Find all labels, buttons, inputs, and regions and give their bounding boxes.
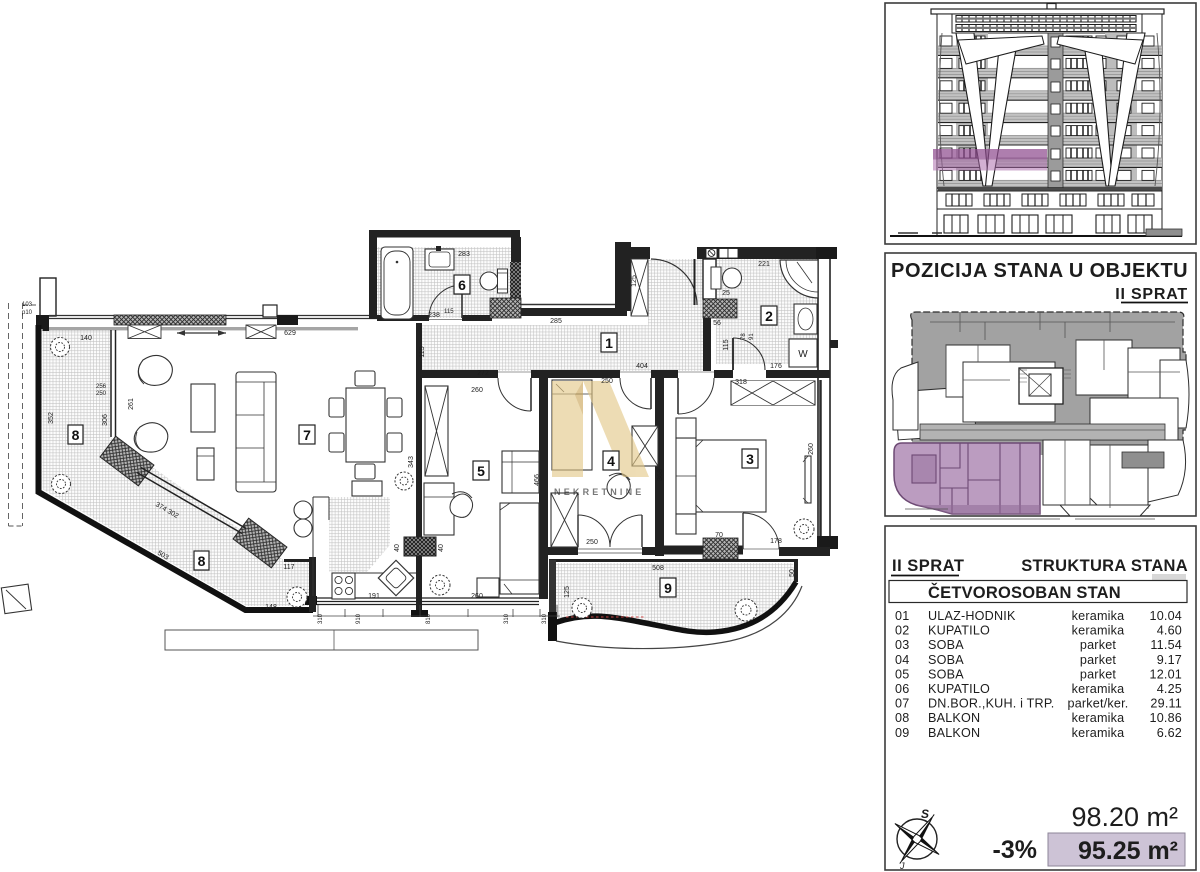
svg-text:II SPRAT: II SPRAT xyxy=(892,557,964,575)
svg-text:306: 306 xyxy=(102,414,109,426)
svg-text:07: 07 xyxy=(895,697,909,711)
svg-text:40: 40 xyxy=(394,544,401,552)
svg-text:70: 70 xyxy=(715,532,723,539)
svg-text:260: 260 xyxy=(808,443,815,455)
svg-text:keramika: keramika xyxy=(1072,711,1125,725)
svg-text:343: 343 xyxy=(408,456,415,468)
svg-text:91: 91 xyxy=(749,333,755,340)
svg-text:II SPRAT: II SPRAT xyxy=(1115,286,1188,303)
svg-text:352: 352 xyxy=(48,412,55,424)
svg-text:08: 08 xyxy=(895,711,909,725)
svg-text:05: 05 xyxy=(895,667,909,681)
svg-text:140: 140 xyxy=(80,335,92,342)
svg-text:SOBA: SOBA xyxy=(928,667,964,681)
svg-text:310: 310 xyxy=(504,613,510,624)
svg-text:115: 115 xyxy=(444,309,454,315)
svg-text:310: 310 xyxy=(542,613,548,624)
svg-text:98.20 m²: 98.20 m² xyxy=(1071,802,1178,832)
svg-text:06: 06 xyxy=(895,682,909,696)
svg-text:KUPATILO: KUPATILO xyxy=(928,682,990,696)
svg-text:260: 260 xyxy=(471,593,483,600)
svg-text:POZICIJA STANA: POZICIJA STANA xyxy=(891,260,1064,282)
svg-text:-3%: -3% xyxy=(993,836,1037,864)
svg-text:115: 115 xyxy=(419,346,426,357)
svg-text:DN.BOR.,KUH. i TRP.: DN.BOR.,KUH. i TRP. xyxy=(928,697,1055,711)
svg-text:p10: p10 xyxy=(22,310,33,316)
svg-text:250: 250 xyxy=(586,539,598,546)
svg-text:ČETVOROSOBAN STAN: ČETVOROSOBAN STAN xyxy=(928,583,1121,602)
svg-text:318: 318 xyxy=(735,379,747,386)
svg-text:250: 250 xyxy=(601,378,613,385)
svg-text:9.17: 9.17 xyxy=(1157,653,1182,667)
svg-text:6: 6 xyxy=(458,277,466,293)
svg-text:STRUKTURA STANA: STRUKTURA STANA xyxy=(1021,557,1188,575)
svg-text:BALKON: BALKON xyxy=(928,726,980,740)
svg-text:4.60: 4.60 xyxy=(1157,624,1182,638)
svg-text:7: 7 xyxy=(303,427,311,443)
svg-text:272: 272 xyxy=(477,370,489,377)
svg-text:5: 5 xyxy=(477,463,485,479)
svg-text:4: 4 xyxy=(607,453,615,469)
svg-text:BALKON: BALKON xyxy=(928,711,980,725)
svg-text:910: 910 xyxy=(356,613,362,624)
svg-text:NEKRETNINE: NEKRETNINE xyxy=(554,487,645,497)
svg-text:keramika: keramika xyxy=(1072,682,1125,696)
svg-text:238: 238 xyxy=(428,312,440,319)
svg-text:176: 176 xyxy=(770,363,782,370)
svg-text:260: 260 xyxy=(471,387,483,394)
svg-text:115: 115 xyxy=(723,339,730,350)
svg-text:103: 103 xyxy=(22,302,33,308)
svg-text:03: 03 xyxy=(895,638,909,652)
svg-text:117: 117 xyxy=(283,564,294,571)
svg-text:10.04: 10.04 xyxy=(1149,609,1182,623)
svg-text:368: 368 xyxy=(657,469,664,481)
svg-text:810: 810 xyxy=(426,613,432,624)
svg-text:KUPATILO: KUPATILO xyxy=(928,624,990,638)
svg-text:SOBA: SOBA xyxy=(928,638,964,652)
svg-text:9: 9 xyxy=(664,580,672,596)
svg-text:11.54: 11.54 xyxy=(1150,638,1182,652)
svg-text:01: 01 xyxy=(895,609,909,623)
svg-text:285: 285 xyxy=(550,318,562,325)
svg-text:50: 50 xyxy=(789,569,796,577)
svg-text:1: 1 xyxy=(605,335,613,351)
svg-text:ULAZ-HODNIK: ULAZ-HODNIK xyxy=(928,609,1016,623)
svg-text:S: S xyxy=(921,807,929,821)
svg-text:09: 09 xyxy=(895,726,909,740)
svg-text:2: 2 xyxy=(765,308,773,324)
svg-text:keramika: keramika xyxy=(1072,609,1125,623)
svg-text:250: 250 xyxy=(96,391,107,397)
svg-text:parket: parket xyxy=(1080,667,1117,681)
svg-text:404: 404 xyxy=(636,363,648,370)
svg-text:508: 508 xyxy=(652,565,664,572)
svg-text:40: 40 xyxy=(438,544,445,552)
svg-text:261: 261 xyxy=(128,398,135,410)
svg-text:10.86: 10.86 xyxy=(1149,711,1182,725)
svg-text:221: 221 xyxy=(758,261,770,268)
svg-text:78: 78 xyxy=(741,333,747,340)
svg-text:02: 02 xyxy=(895,624,909,638)
svg-text:256: 256 xyxy=(96,384,107,390)
svg-text:keramika: keramika xyxy=(1072,624,1125,638)
svg-text:629: 629 xyxy=(284,330,296,337)
svg-text:310: 310 xyxy=(318,613,324,624)
svg-text:191: 191 xyxy=(368,593,380,600)
svg-text:4.25: 4.25 xyxy=(1157,682,1182,696)
svg-text:04: 04 xyxy=(895,653,909,667)
svg-text:8: 8 xyxy=(72,427,80,443)
svg-text:keramika: keramika xyxy=(1072,726,1125,740)
svg-text:25: 25 xyxy=(722,290,730,297)
svg-text:6.62: 6.62 xyxy=(1157,726,1182,740)
svg-text:W: W xyxy=(798,349,808,360)
svg-text:SOBA: SOBA xyxy=(928,653,964,667)
svg-text:3: 3 xyxy=(746,451,754,467)
svg-text:148: 148 xyxy=(265,604,277,611)
svg-text:125: 125 xyxy=(631,275,638,287)
svg-text:parket: parket xyxy=(1080,638,1117,652)
svg-text:125: 125 xyxy=(564,586,571,598)
svg-text:95.25 m²: 95.25 m² xyxy=(1078,837,1178,865)
svg-text:parket/ker.: parket/ker. xyxy=(1068,697,1129,711)
svg-text:U OBJEKTU: U OBJEKTU xyxy=(1069,260,1188,282)
svg-text:8: 8 xyxy=(198,553,206,569)
svg-text:56: 56 xyxy=(713,320,721,327)
svg-text:283: 283 xyxy=(458,251,470,258)
svg-text:178: 178 xyxy=(770,538,782,545)
svg-text:466: 466 xyxy=(534,474,541,486)
svg-text:29.11: 29.11 xyxy=(1150,697,1182,711)
svg-text:parket: parket xyxy=(1080,653,1117,667)
svg-text:J: J xyxy=(899,861,905,871)
svg-text:12.01: 12.01 xyxy=(1149,667,1182,681)
